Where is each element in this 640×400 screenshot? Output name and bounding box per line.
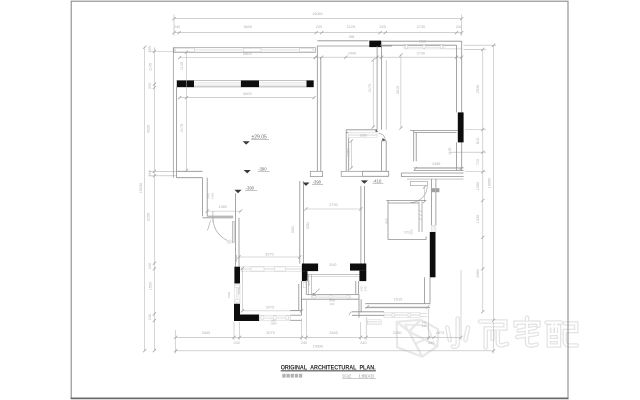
svg-text:240: 240 (428, 341, 434, 345)
svg-text:245: 245 (379, 25, 385, 29)
svg-text:240: 240 (422, 324, 427, 328)
svg-text:1515: 1515 (419, 40, 426, 44)
svg-text:2280: 2280 (393, 331, 401, 335)
svg-text:3330: 3330 (291, 226, 295, 234)
svg-text:-390: -390 (313, 180, 322, 185)
svg-text:2930: 2930 (476, 85, 480, 93)
svg-text:2595: 2595 (237, 287, 241, 294)
svg-text:-390: -390 (246, 186, 255, 191)
svg-text:16060: 16060 (312, 12, 323, 16)
svg-text:2485: 2485 (432, 162, 440, 166)
svg-text:3155: 3155 (147, 213, 151, 221)
svg-text:240: 240 (301, 341, 307, 345)
svg-text:240: 240 (148, 314, 152, 320)
svg-text:3075: 3075 (266, 306, 274, 310)
svg-text:10050: 10050 (487, 178, 491, 189)
svg-text:240: 240 (148, 83, 152, 89)
svg-text:1500: 1500 (148, 282, 152, 290)
svg-text:1145: 1145 (149, 63, 153, 71)
svg-text:710: 710 (476, 159, 480, 165)
svg-text:15930: 15930 (139, 183, 143, 194)
svg-text:2730: 2730 (417, 25, 425, 29)
svg-text:1135: 1135 (448, 147, 452, 154)
svg-text:1050: 1050 (476, 182, 480, 190)
svg-text:2440: 2440 (348, 52, 356, 56)
svg-text:1:80(A3): 1:80(A3) (359, 373, 375, 378)
svg-text:240: 240 (330, 302, 335, 306)
svg-text:1060: 1060 (360, 134, 368, 138)
svg-text:SCALE: SCALE (342, 373, 351, 378)
svg-text:1500: 1500 (227, 291, 231, 298)
svg-text:240: 240 (174, 25, 180, 29)
svg-text:815: 815 (476, 138, 480, 144)
svg-text:6600: 6600 (244, 25, 252, 29)
svg-text:4175: 4175 (180, 124, 184, 132)
svg-text:240: 240 (148, 263, 152, 269)
svg-text:3075: 3075 (266, 331, 274, 335)
svg-text:3040: 3040 (329, 263, 336, 267)
svg-text:2730: 2730 (417, 52, 425, 56)
svg-text:-390: -390 (258, 166, 267, 171)
svg-text:3330: 3330 (306, 222, 310, 230)
svg-text:800: 800 (409, 229, 413, 234)
svg-text:240: 240 (234, 341, 240, 345)
svg-text:240: 240 (316, 25, 322, 29)
svg-text:6600: 6600 (243, 92, 251, 96)
svg-text:ORIGINAL ARCHITECTURAL PLAN.: ORIGINAL ARCHITECTURAL PLAN. (281, 364, 376, 371)
svg-text:1515: 1515 (394, 297, 402, 301)
svg-text:1145: 1145 (180, 62, 184, 70)
svg-text:1335: 1335 (476, 215, 480, 223)
svg-text:14590: 14590 (313, 345, 324, 349)
svg-text:2680: 2680 (476, 269, 480, 277)
svg-text:-410: -410 (373, 178, 382, 183)
svg-text:1460: 1460 (211, 192, 215, 199)
svg-text:1050: 1050 (346, 148, 350, 156)
svg-text:358: 358 (349, 35, 355, 39)
svg-text:240: 240 (360, 341, 366, 345)
svg-text:2790: 2790 (329, 203, 337, 207)
svg-text:240: 240 (363, 286, 367, 291)
svg-text:2125: 2125 (347, 25, 355, 29)
svg-text:1380: 1380 (218, 205, 226, 209)
svg-text:888: 888 (307, 281, 311, 286)
svg-text:3075: 3075 (265, 252, 273, 256)
svg-text:3020: 3020 (147, 125, 151, 133)
svg-text:2670: 2670 (436, 331, 444, 335)
svg-text:800: 800 (385, 218, 389, 224)
svg-text:2595: 2595 (270, 322, 277, 326)
svg-text:2845: 2845 (202, 331, 210, 335)
svg-text:240: 240 (456, 25, 462, 29)
svg-text:2845: 2845 (329, 331, 337, 335)
svg-text:4170: 4170 (368, 84, 372, 92)
svg-text:3515: 3515 (396, 86, 400, 94)
